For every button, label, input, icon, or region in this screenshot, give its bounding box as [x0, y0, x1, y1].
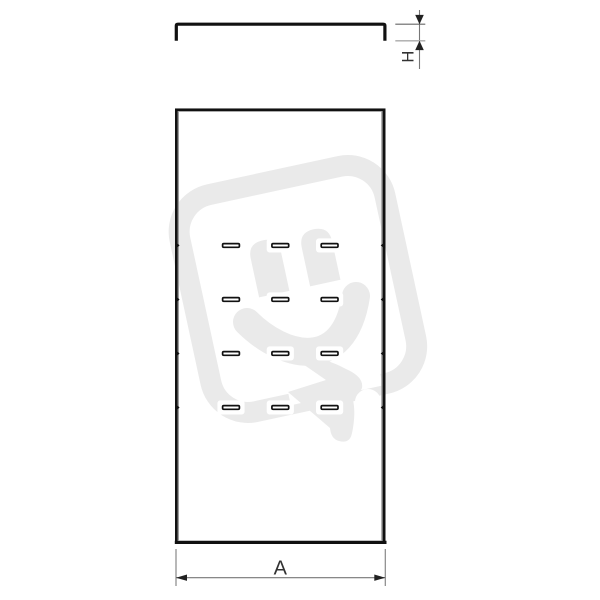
svg-text:A: A	[274, 557, 288, 579]
svg-text:H: H	[400, 51, 418, 63]
